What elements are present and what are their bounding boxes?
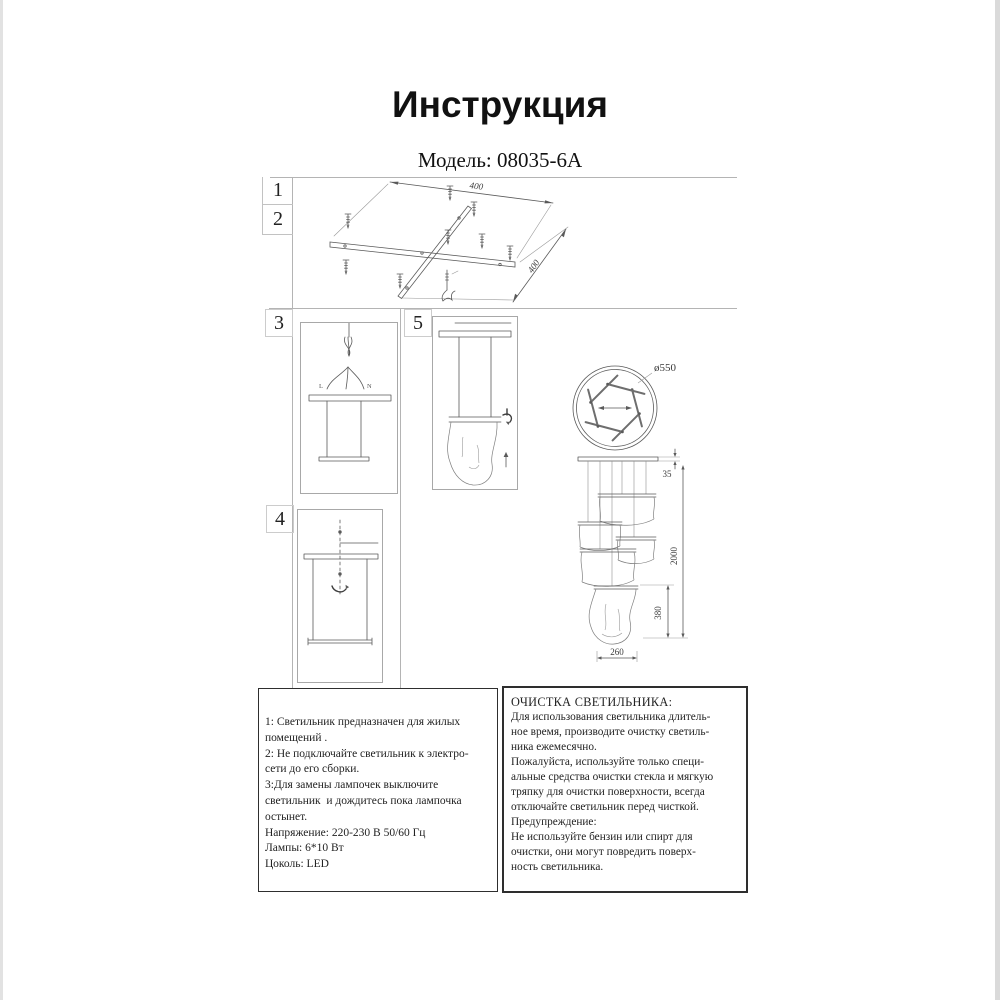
canopy-and-lamp	[309, 395, 391, 461]
terminal-live-label: L	[319, 383, 323, 390]
cleaning-title: ОЧИСТКА СВЕТИЛЬНИКА:	[511, 695, 742, 710]
page-title: Инструкция	[0, 84, 1000, 126]
canopy-height-dim: 35	[663, 469, 673, 479]
center-width-arrow	[598, 406, 632, 410]
note-line: светильник и дождитесь пока лампочка	[265, 794, 493, 810]
cleaning-line: Не используйте бензин или спирт для	[511, 830, 742, 845]
step5-diagram-frame	[432, 316, 518, 490]
mounting-screws	[343, 186, 513, 288]
glass-shade	[448, 422, 498, 485]
side-view-diagram: 35 2000 380 260	[558, 444, 708, 666]
plate-width-dim: 400	[469, 180, 484, 192]
cleaning-line: очистки, они могут повредить поверх-	[511, 845, 742, 860]
note-line: 3:Для замены лампочек выключите	[265, 778, 493, 794]
canopy-and-lamp	[304, 554, 378, 645]
instruction-sheet: Инструкция Модель: 08035-6A 1 2 3 5 4 40…	[0, 0, 1000, 1000]
usage-notes-box: 1: Светильник предназначен для жилых пом…	[258, 688, 498, 892]
overall-height-dim: 2000	[669, 547, 679, 566]
plate-depth-dim: 400	[526, 257, 542, 274]
canopy	[578, 457, 658, 461]
step-number-3: 3	[265, 309, 293, 337]
step-number-2: 2	[262, 205, 293, 235]
model-label: Модель: 08035-6A	[0, 148, 1000, 173]
cleaning-line: Предупреждение:	[511, 815, 742, 830]
note-line: Цоколь: LED	[265, 857, 493, 873]
shade-width-dim: 260	[610, 647, 624, 657]
cleaning-line: ное время, производите очистку светиль-	[511, 725, 742, 740]
cleaning-line: отключайте светильник перед чисткой.	[511, 800, 742, 815]
cleaning-instructions-box: ОЧИСТКА СВЕТИЛЬНИКА: Для использования с…	[502, 686, 748, 893]
anchor-detail	[442, 270, 458, 301]
section-rule-left-vertical	[292, 177, 293, 688]
mounting-plate-diagram: 400 400	[300, 176, 580, 310]
step3-diagram-frame: L N	[300, 322, 398, 494]
step-number-5: 5	[404, 309, 432, 337]
cleaning-line: ность светильника.	[511, 860, 742, 875]
note-line: остынет.	[265, 810, 493, 826]
cleaning-line: Для использования светильника длитель-	[511, 710, 742, 725]
step-number-1: 1	[262, 177, 293, 205]
diameter-dim: ø550	[654, 362, 677, 374]
alignment-axis	[338, 520, 378, 594]
cross-bars	[330, 206, 515, 299]
cleaning-line: Пожалуйста, используйте только специ-	[511, 755, 742, 770]
step5-shade-diagram	[433, 317, 517, 489]
note-line: 2: Не подключайте светильник к электро-	[265, 747, 493, 763]
cleaning-line: ника ежемесячно.	[511, 740, 742, 755]
cleaning-line: альные средства очистки стекла и мягкую	[511, 770, 742, 785]
canopy	[439, 323, 511, 422]
suspension-wires	[588, 461, 646, 586]
rotate-arrow	[503, 409, 511, 467]
note-line: Лампы: 6*10 Вт	[265, 841, 493, 857]
step-number-4: 4	[266, 505, 294, 533]
dimension-lines	[334, 182, 568, 302]
shade-height-dim: 380	[653, 606, 663, 620]
section-rule-center-vertical	[400, 308, 401, 688]
note-line: 1: Светильник предназначен для жилых	[265, 715, 493, 731]
rotate-arrow	[332, 585, 349, 592]
note-line: сети до его сборки.	[265, 762, 493, 778]
shade-cluster	[578, 494, 656, 644]
note-line: помещений .	[265, 731, 493, 747]
step4-diagram-frame	[297, 509, 383, 683]
supply-wire	[327, 323, 364, 389]
terminal-neutral-label: N	[367, 383, 372, 390]
note-line: Напряжение: 220-230 В 50/60 Гц	[265, 826, 493, 842]
step4-assembly-diagram	[298, 510, 382, 682]
step3-wiring-diagram: L N	[301, 323, 397, 493]
cleaning-line: тряпку для очистки поверхности, всегда	[511, 785, 742, 800]
